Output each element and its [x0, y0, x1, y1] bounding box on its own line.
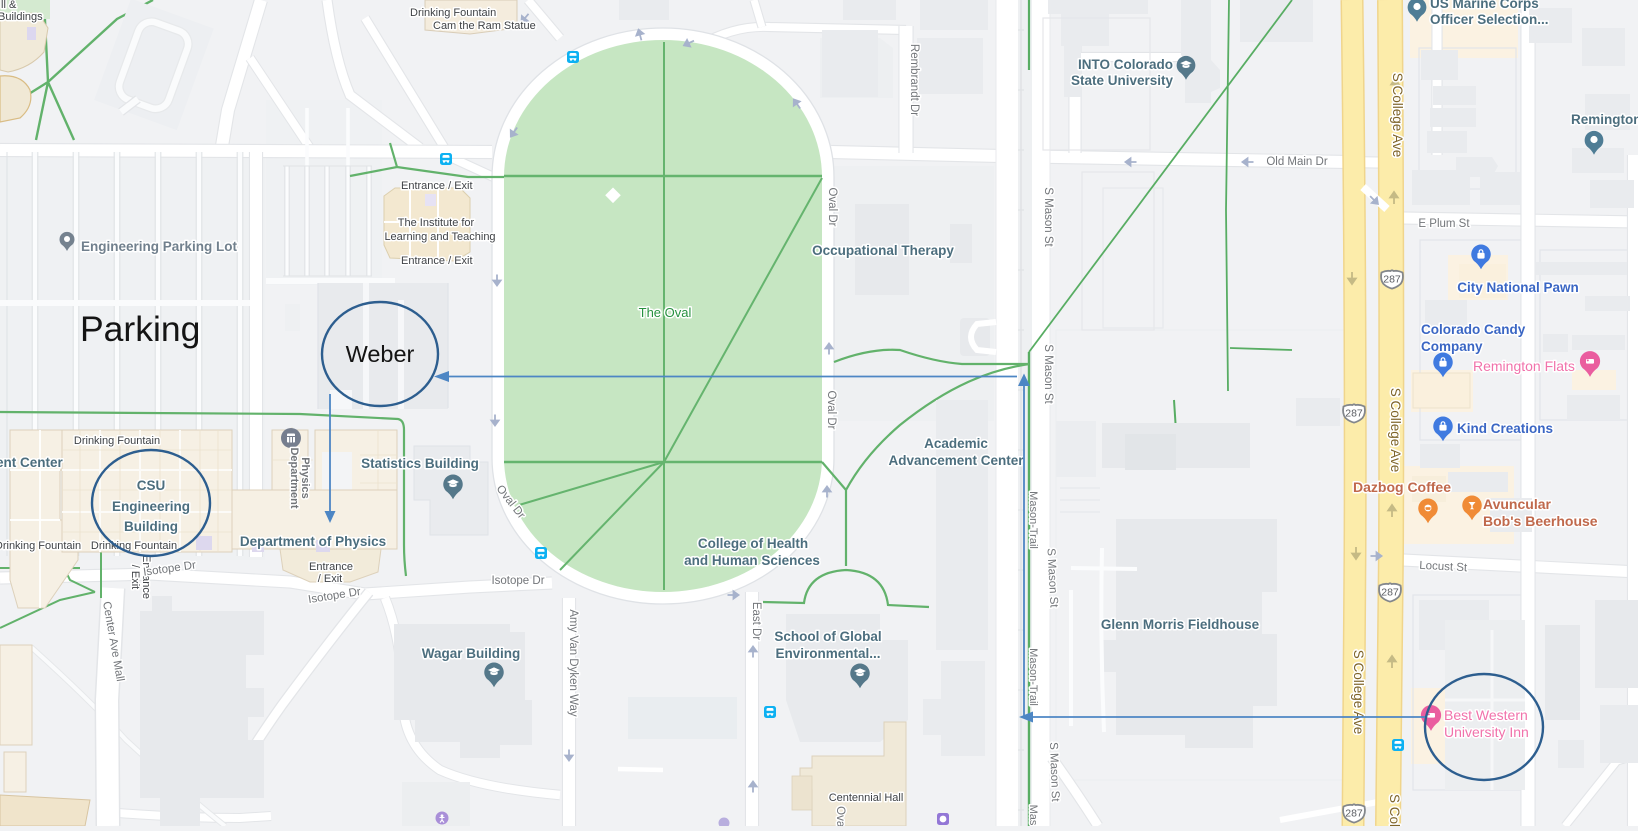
svg-text:Parking: Parking	[80, 309, 200, 349]
svg-text:City National Pawn: City National Pawn	[1457, 280, 1579, 295]
svg-text:S College Ave: S College Ave	[1351, 650, 1366, 735]
svg-text:Dazbog Coffee: Dazbog Coffee	[1353, 479, 1451, 495]
svg-text:CSU: CSU	[137, 478, 166, 493]
svg-text:Learning and Teaching: Learning and Teaching	[384, 231, 495, 243]
svg-text:/ Exit: / Exit	[129, 565, 141, 589]
svg-text:S Mason St: S Mason St	[1042, 187, 1054, 247]
svg-text:State University: State University	[1071, 73, 1174, 88]
svg-text:Glenn Morris Fieldhouse: Glenn Morris Fieldhouse	[1101, 617, 1260, 632]
svg-text:Weber: Weber	[346, 341, 415, 367]
svg-text:Buildings: Buildings	[0, 11, 43, 23]
svg-text:Oval: Oval	[834, 806, 846, 826]
svg-text:Oval Dr: Oval Dr	[825, 391, 837, 430]
svg-text:Oval Dr: Oval Dr	[826, 188, 838, 227]
svg-text:Academic: Academic	[924, 436, 988, 451]
svg-text:Company: Company	[1421, 339, 1483, 354]
svg-text:Bob's Beerhouse: Bob's Beerhouse	[1483, 513, 1598, 529]
svg-text:Engineering Parking Lot: Engineering Parking Lot	[81, 239, 238, 254]
svg-text:University Inn: University Inn	[1444, 724, 1529, 740]
svg-text:S Coll: S Coll	[1387, 794, 1402, 826]
svg-text:Engineering: Engineering	[112, 499, 190, 514]
svg-text:Department: Department	[288, 447, 300, 508]
svg-text:Officer Selection...: Officer Selection...	[1430, 12, 1549, 27]
svg-text:Statistics Building: Statistics Building	[361, 456, 479, 471]
svg-text:East Dr: East Dr	[750, 602, 762, 641]
svg-text:Drinking Fountain: Drinking Fountain	[74, 435, 160, 447]
svg-text:ent Center: ent Center	[0, 455, 64, 470]
svg-text:Environmental...: Environmental...	[775, 646, 880, 661]
svg-text:Rembrandt Dr: Rembrandt Dr	[908, 44, 920, 116]
svg-text:College of Health: College of Health	[698, 536, 808, 551]
svg-text:Mason-Trail: Mason-Trail	[1027, 491, 1039, 549]
svg-text:287: 287	[1345, 408, 1363, 420]
svg-text:Physics: Physics	[299, 457, 311, 499]
svg-text:and Human Sciences: and Human Sciences	[684, 553, 820, 568]
svg-text:Advancement Center: Advancement Center	[888, 453, 1024, 468]
svg-text:E Plum St: E Plum St	[1418, 218, 1470, 230]
svg-text:Amy Van Dyken Way: Amy Van Dyken Way	[567, 609, 579, 717]
svg-text:Remington Flats: Remington Flats	[1473, 358, 1575, 374]
svg-text:Drinking Fountain: Drinking Fountain	[0, 540, 81, 552]
svg-text:US Marine Corps: US Marine Corps	[1430, 0, 1539, 11]
svg-text:287: 287	[1345, 808, 1363, 820]
svg-text:Centennial Hall: Centennial Hall	[829, 792, 904, 804]
svg-text:Isotope Dr: Isotope Dr	[491, 575, 544, 587]
svg-text:Old Main Dr: Old Main Dr	[1266, 156, 1328, 168]
svg-text:Best Western: Best Western	[1444, 707, 1528, 723]
svg-text:INTO Colorado: INTO Colorado	[1078, 57, 1173, 72]
svg-text:Drinking Fountain: Drinking Fountain	[91, 540, 177, 552]
svg-text:Entrance / Exit: Entrance / Exit	[401, 180, 473, 192]
svg-text:Mas: Mas	[1027, 805, 1039, 826]
svg-text:Locust St: Locust St	[1419, 560, 1468, 575]
svg-text:S Mason St: S Mason St	[1047, 742, 1061, 803]
svg-text:Colorado Candy: Colorado Candy	[1421, 322, 1526, 337]
svg-text:/ Exit: / Exit	[318, 573, 342, 585]
svg-text:ll &: ll &	[1, 0, 17, 11]
svg-text:Avuncular: Avuncular	[1483, 496, 1551, 512]
svg-text:S Mason St: S Mason St	[1042, 344, 1054, 404]
svg-text:Occupational Therapy: Occupational Therapy	[812, 243, 954, 258]
svg-text:Kind Creations: Kind Creations	[1457, 421, 1553, 436]
svg-text:Building: Building	[124, 519, 178, 534]
svg-text:S College Ave: S College Ave	[1390, 73, 1405, 158]
svg-text:S College Ave: S College Ave	[1388, 388, 1403, 473]
svg-text:Drinking Fountain: Drinking Fountain	[410, 7, 496, 19]
svg-text:Mason-Trail: Mason-Trail	[1027, 648, 1039, 706]
svg-text:287: 287	[1381, 587, 1399, 599]
svg-text:Entrance: Entrance	[309, 561, 353, 573]
svg-text:Cam the Ram Statue: Cam the Ram Statue	[433, 20, 536, 32]
svg-text:The Institute for: The Institute for	[398, 217, 475, 229]
svg-text:Remington: Remington	[1571, 112, 1638, 127]
svg-text:The Oval: The Oval	[639, 305, 692, 320]
svg-text:287: 287	[1383, 274, 1401, 286]
svg-text:Wagar Building: Wagar Building	[422, 646, 521, 661]
svg-text:Department of Physics: Department of Physics	[240, 534, 386, 549]
svg-text:Entrance / Exit: Entrance / Exit	[401, 255, 473, 267]
svg-text:School of Global: School of Global	[774, 629, 881, 644]
